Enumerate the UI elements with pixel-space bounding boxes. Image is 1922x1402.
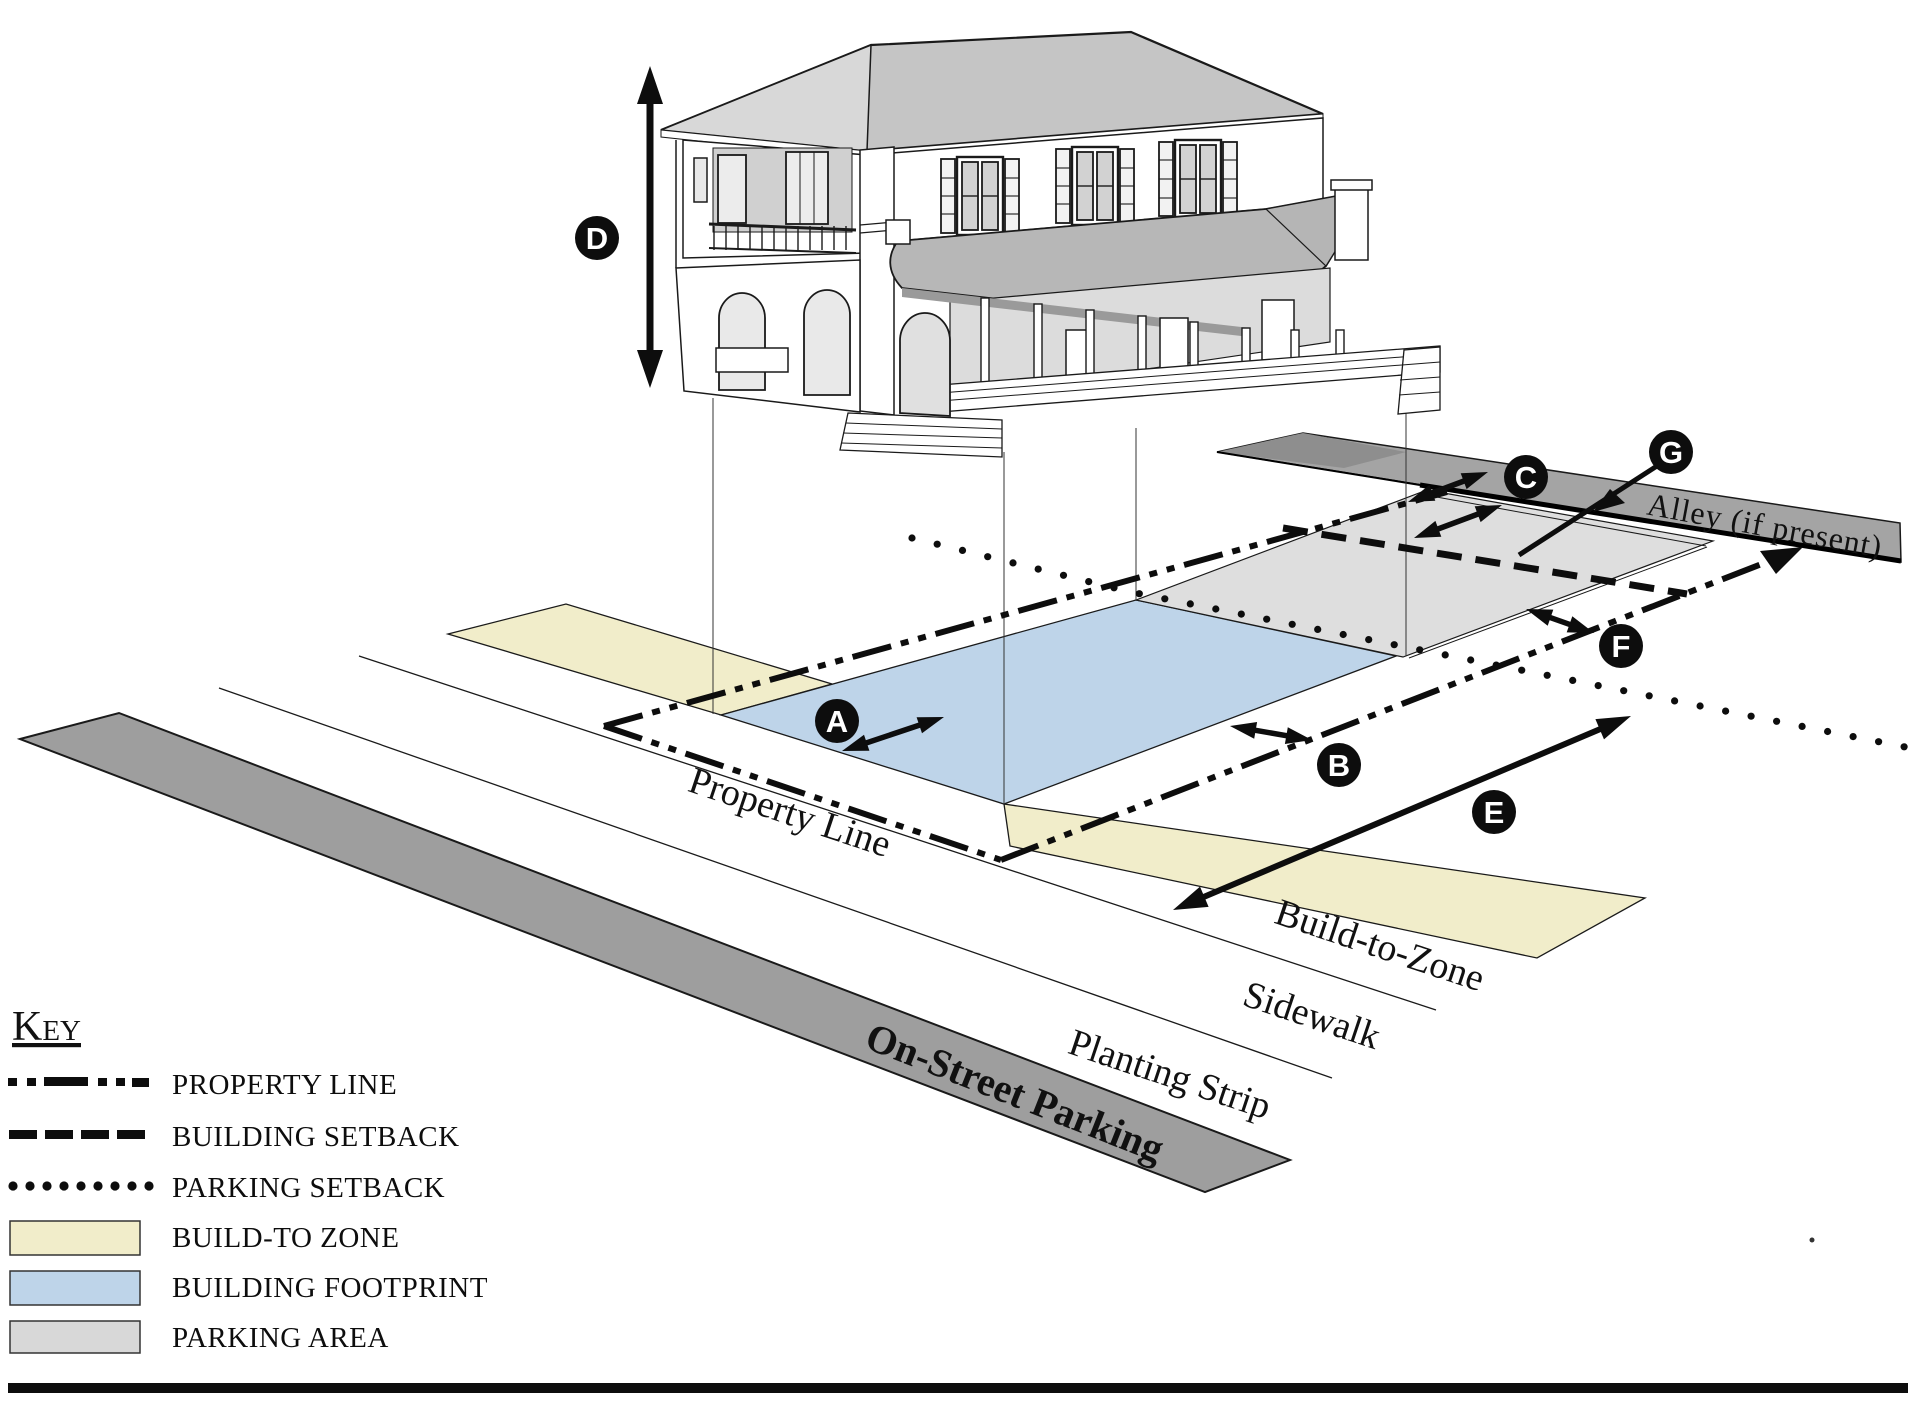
svg-text:PARKING SETBACK: PARKING SETBACK xyxy=(172,1172,445,1204)
svg-text:G: G xyxy=(1659,435,1683,470)
svg-text:C: C xyxy=(1515,460,1537,495)
svg-text:B: B xyxy=(1328,748,1350,783)
svg-text:BUILDING FOOTPRINT: BUILDING FOOTPRINT xyxy=(172,1272,488,1304)
svg-text:F: F xyxy=(1612,629,1631,664)
svg-text:D: D xyxy=(586,221,608,256)
svg-text:PROPERTY LINE: PROPERTY LINE xyxy=(172,1069,397,1101)
svg-text:PARKING AREA: PARKING AREA xyxy=(172,1322,389,1354)
svg-text:E: E xyxy=(1484,795,1505,830)
svg-text:BUILDING SETBACK: BUILDING SETBACK xyxy=(172,1121,460,1153)
svg-text:Key: Key xyxy=(12,1004,81,1050)
svg-text:BUILD-TO ZONE: BUILD-TO ZONE xyxy=(172,1222,399,1254)
svg-text:A: A xyxy=(826,704,848,739)
